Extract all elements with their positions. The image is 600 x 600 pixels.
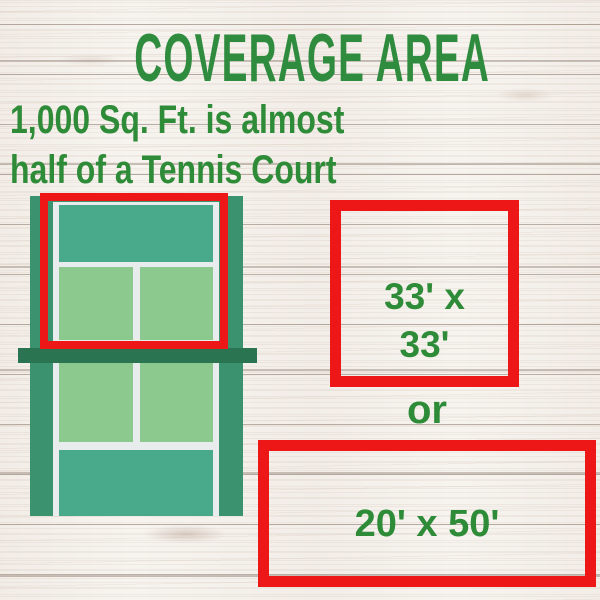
- page-title-text: COVERAGE AREA: [134, 24, 490, 92]
- court-service-box-bottom-left: [59, 363, 133, 442]
- page-title: COVERAGE AREA: [0, 24, 600, 92]
- coverage-rect-20x50: 20' x 50': [258, 440, 596, 587]
- court-backcourt-bottom: [59, 450, 213, 516]
- subtitle-line-1: 1,000 Sq. Ft. is almost: [10, 95, 344, 145]
- coverage-infographic: COVERAGE AREA 1,000 Sq. Ft. is almost ha…: [0, 0, 600, 600]
- square-dimension-label: 33' x 33': [384, 273, 465, 369]
- subtitle: 1,000 Sq. Ft. is almost half of a Tennis…: [10, 95, 344, 195]
- or-separator: or: [258, 390, 596, 430]
- rect-dimension-label: 20' x 50': [355, 505, 500, 543]
- court-net-band: [18, 348, 257, 363]
- square-dimension-line-2: 33': [384, 321, 465, 369]
- subtitle-line-2: half of a Tennis Court: [10, 145, 344, 195]
- court-service-box-bottom-right: [140, 363, 213, 442]
- coverage-highlight-court-half: [40, 193, 228, 349]
- square-dimension-line-1: 33' x: [384, 273, 465, 321]
- coverage-square-33x33: 33' x 33': [330, 200, 519, 387]
